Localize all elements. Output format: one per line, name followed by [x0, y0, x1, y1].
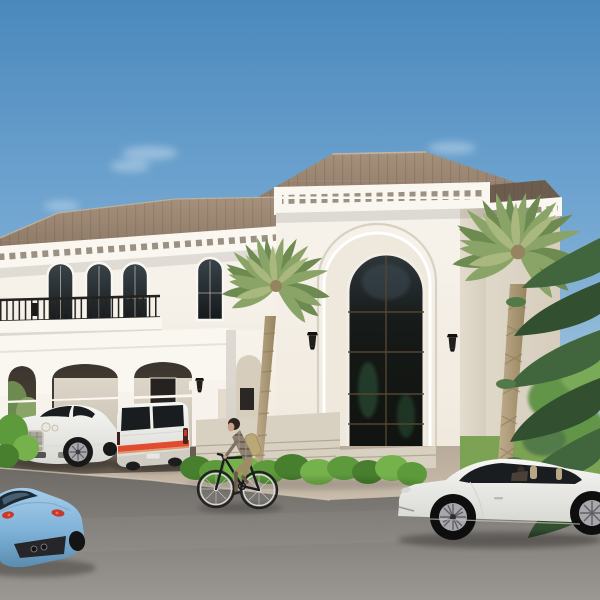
palm-right-crown-bud [511, 245, 526, 260]
palm-left-crown-bud [270, 280, 282, 292]
niche-window [240, 388, 254, 410]
coupe-shadow [398, 532, 600, 548]
van-wheel-left [126, 462, 140, 471]
blue-car-tail-glow-r [56, 512, 59, 515]
van-taillight-glow [184, 430, 187, 436]
van-wheel-right [168, 458, 182, 467]
blue-car-exhaust-r [41, 544, 47, 550]
corner-pillar-cap [189, 380, 229, 390]
sedan-hub [76, 450, 81, 455]
van-taillight-left [117, 432, 120, 445]
architectural-rendering: 3D architectural rendering of a two-stor… [0, 0, 600, 600]
van-glass-pillar [151, 405, 152, 429]
sedan-rear-wheel [103, 442, 117, 456]
rider-hand [223, 455, 227, 459]
van-license-plate [146, 453, 160, 459]
coupe-seat-rear [556, 468, 562, 480]
blue-car-exhaust-l [31, 546, 37, 552]
scene-canvas [0, 0, 600, 600]
grand-glass-entry [348, 254, 424, 452]
balcony [0, 296, 162, 337]
coupe-seat-front [530, 466, 537, 479]
blue-car-tail-glow-l [8, 514, 11, 517]
coupe-door-handle [494, 497, 503, 499]
rider-face [228, 423, 235, 432]
